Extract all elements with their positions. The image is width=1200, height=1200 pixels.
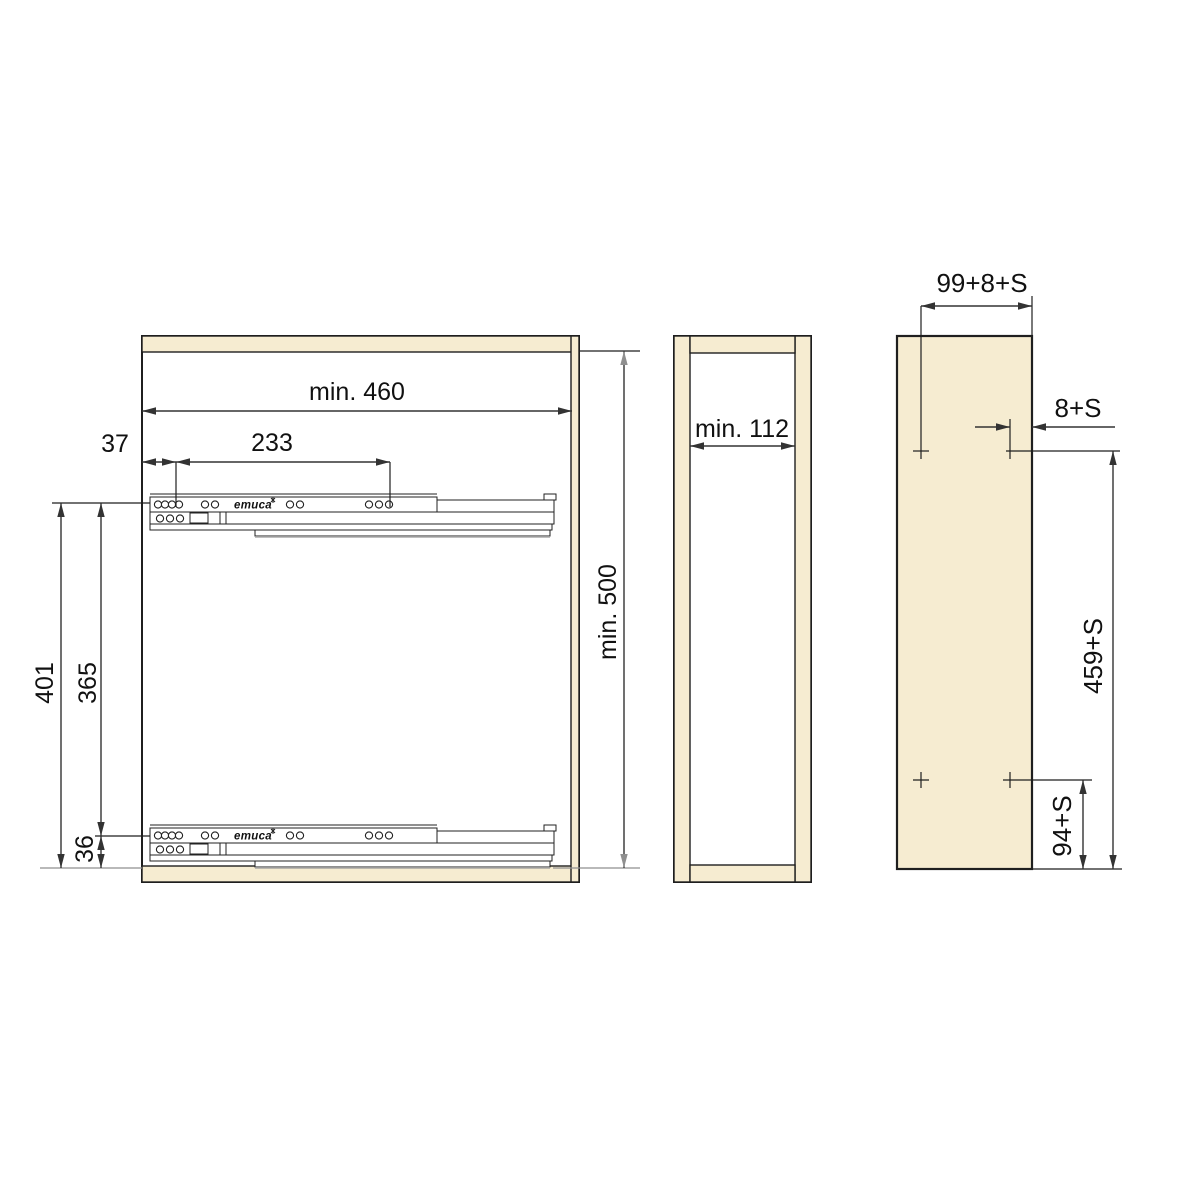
side-view-top-rail (690, 336, 795, 353)
dim-label-8-s: 8+S (1055, 393, 1102, 423)
dim-label-401: 401 (31, 662, 59, 704)
dim-inner-width: min. 112 (690, 415, 795, 446)
dim-runner-spacing: 365 (74, 503, 102, 836)
dim-label-459-s: 459+S (1078, 618, 1108, 694)
cabinet-outline (142, 336, 579, 882)
dim-label-min-500: min. 500 (594, 564, 622, 660)
dim-upper-runner-height: 401 (31, 503, 61, 868)
back-panel-view (897, 336, 1032, 869)
dim-lower-runner-height: 36 (71, 835, 101, 868)
cabinet-top-panel (142, 336, 579, 352)
back-panel (897, 336, 1032, 869)
dim-cabinet-height: min. 500 (594, 351, 624, 868)
technical-drawing-page: emuca (0, 0, 1200, 1200)
dim-label-233: 233 (251, 429, 293, 457)
dim-back-panel-width: 99+8+S (921, 268, 1032, 306)
side-view-left-panel (674, 336, 690, 882)
dim-label-99-8-s: 99+8+S (936, 268, 1027, 298)
front-view (142, 336, 579, 882)
side-view-bottom-rail (690, 865, 795, 882)
upper-runner (150, 494, 556, 537)
dim-lower-holes-height: 94+S (1047, 780, 1083, 869)
dim-label-94-s: 94+S (1047, 795, 1077, 856)
lower-runner (150, 825, 556, 868)
dim-label-37: 37 (101, 430, 129, 458)
dim-label-min-112: min. 112 (695, 415, 789, 443)
dim-label-min-460: min. 460 (309, 378, 405, 406)
cabinet-runner-installation-diagram: emuca (0, 0, 1200, 1200)
dim-label-36: 36 (71, 835, 99, 863)
dim-label-365: 365 (74, 662, 102, 704)
side-view-right-panel (795, 336, 811, 882)
cabinet-back-panel-edge (571, 336, 579, 882)
